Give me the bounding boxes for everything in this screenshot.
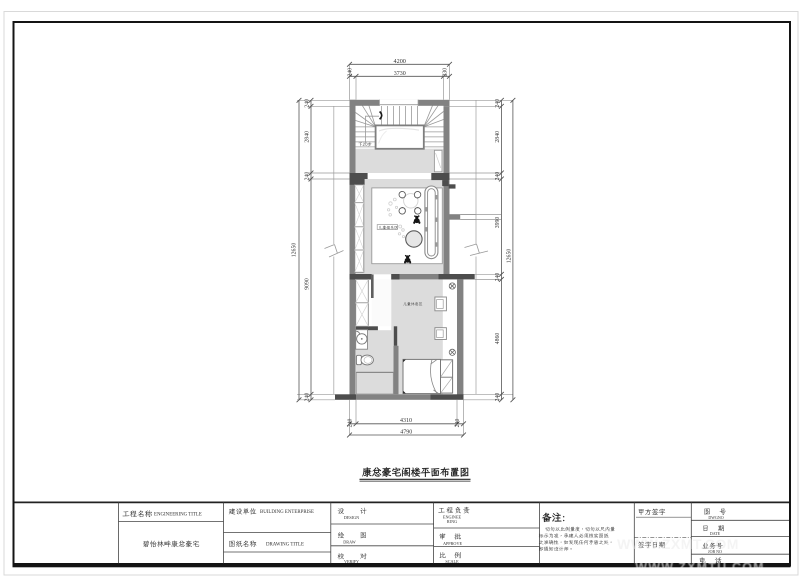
svg-text:SCALE: SCALE	[445, 559, 459, 564]
svg-text:12650: 12650	[507, 249, 513, 264]
svg-text:240: 240	[305, 99, 311, 108]
svg-text:240: 240	[305, 393, 311, 402]
svg-text:WWW.ZXMT.COM: WWW.ZXMT.COM	[617, 536, 739, 552]
svg-text:240: 240	[495, 99, 501, 108]
svg-text:DESIGN: DESIGN	[344, 515, 359, 520]
svg-text:DRAW: DRAW	[343, 539, 356, 544]
svg-text:RING: RING	[447, 519, 457, 524]
svg-text:4310: 4310	[400, 418, 412, 424]
svg-text:2840: 2840	[305, 131, 311, 143]
svg-text:12650: 12650	[291, 243, 297, 258]
svg-text:VERIFY: VERIFY	[344, 559, 359, 564]
svg-text:DWGNO: DWGNO	[708, 515, 723, 520]
svg-text:WWW.ZXMTU.COM: WWW.ZXMTU.COM	[635, 561, 764, 575]
svg-text:BUILDING ENTERPRISE: BUILDING ENTERPRISE	[260, 510, 314, 515]
svg-text:240: 240	[305, 172, 311, 181]
svg-text:3730: 3730	[394, 71, 406, 77]
svg-text:9090: 9090	[305, 278, 311, 290]
svg-text:ENGINEERING TITLE: ENGINEERING TITLE	[154, 513, 202, 518]
svg-text:3990: 3990	[495, 217, 501, 229]
svg-text:4790: 4790	[400, 429, 412, 435]
svg-text:APPROVE: APPROVE	[443, 541, 463, 546]
svg-text:DRAWING TITLE: DRAWING TITLE	[266, 543, 304, 548]
svg-text:2840: 2840	[495, 131, 501, 143]
svg-text:240: 240	[348, 68, 354, 77]
svg-text:240: 240	[495, 393, 501, 402]
svg-text:4200: 4200	[394, 58, 406, 65]
svg-text:240: 240	[455, 419, 461, 428]
svg-text:240: 240	[348, 419, 354, 428]
svg-text:230: 230	[443, 68, 449, 77]
svg-text:240: 240	[495, 273, 501, 282]
svg-text:4860: 4860	[495, 333, 501, 345]
svg-text:240: 240	[495, 172, 501, 181]
